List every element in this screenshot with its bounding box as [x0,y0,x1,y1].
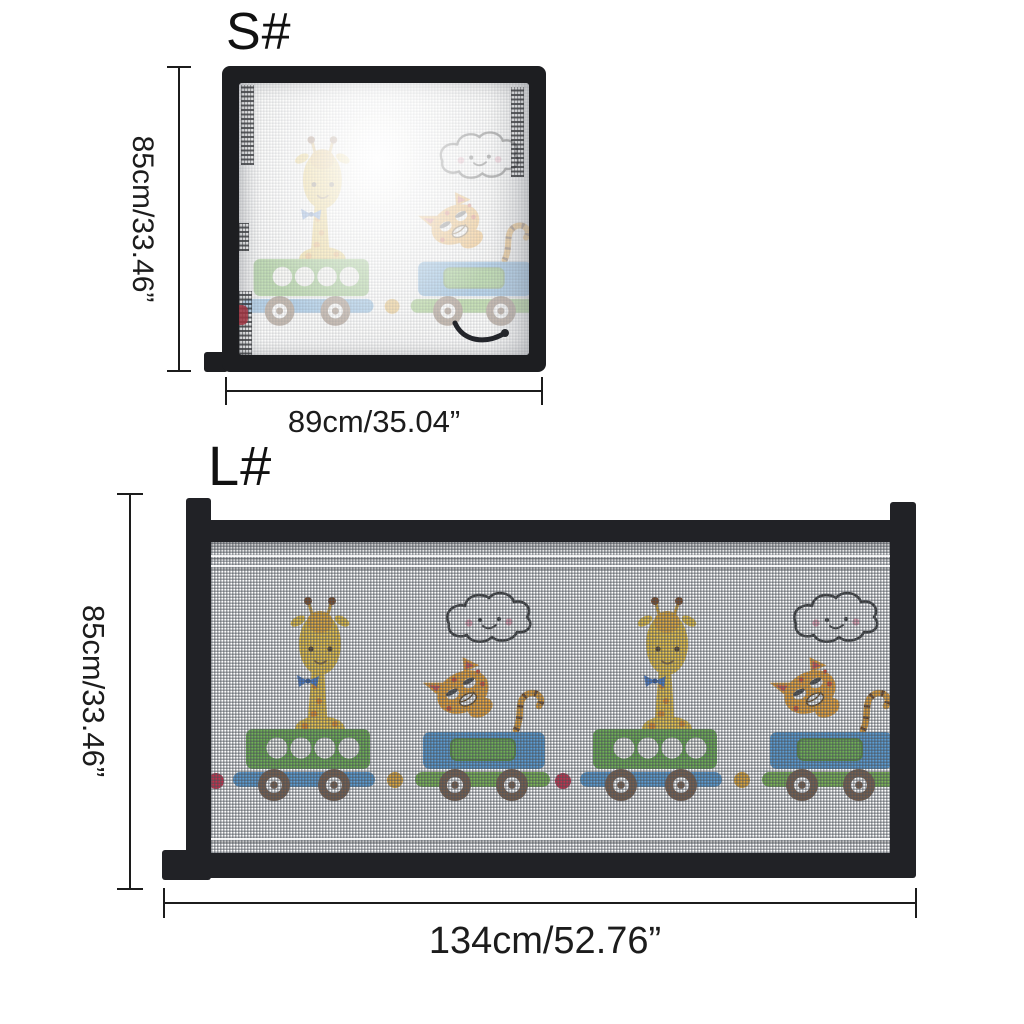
s-corner-strap-hook [451,315,511,355]
l-height-cap-top [117,493,143,495]
size-s-height-label: 85cm/33.46” [125,136,159,303]
size-l-width-label: 134cm/52.76” [429,920,661,963]
l-width-line [163,902,917,904]
l-gate-left-post [186,498,211,874]
size-s-width-label: 89cm/35.04” [288,404,460,440]
l-gate-top-bar [186,520,916,542]
l-width-cap-left [163,888,165,918]
s-width-line [225,390,543,392]
s-width-cap-right [541,377,543,405]
s-edge-strap-mid-left [239,223,249,251]
size-l-label: L# [208,438,272,494]
s-partial-red-dot [239,305,248,325]
l-mesh-texture [211,542,890,853]
s-height-line [178,66,180,372]
l-height-line [129,494,131,890]
s-gate [222,66,546,372]
s-corner-strap-top-left [241,85,254,165]
l-mesh-seam-top-2 [211,565,890,567]
l-height-cap-bottom [117,888,143,890]
l-gate-mesh-panel [211,542,890,853]
product-size-diagram: S# 85cm/33.46” [0,0,1024,1024]
l-mesh-seam-top-1 [211,555,890,557]
size-s-label: S# [226,6,292,58]
l-gate-bottom-bar [190,853,912,878]
s-height-cap-top [167,66,191,68]
size-l-height-label: 85cm/33.46” [75,605,111,777]
s-height-cap-bottom [167,370,191,372]
l-mesh-seam-bottom [211,838,890,840]
l-gate-right-post [890,502,916,874]
s-corner-strap-top-right [511,87,524,177]
s-gate-mesh-panel [239,83,529,355]
s-width-cap-left [225,377,227,405]
l-width-cap-right [915,888,917,918]
